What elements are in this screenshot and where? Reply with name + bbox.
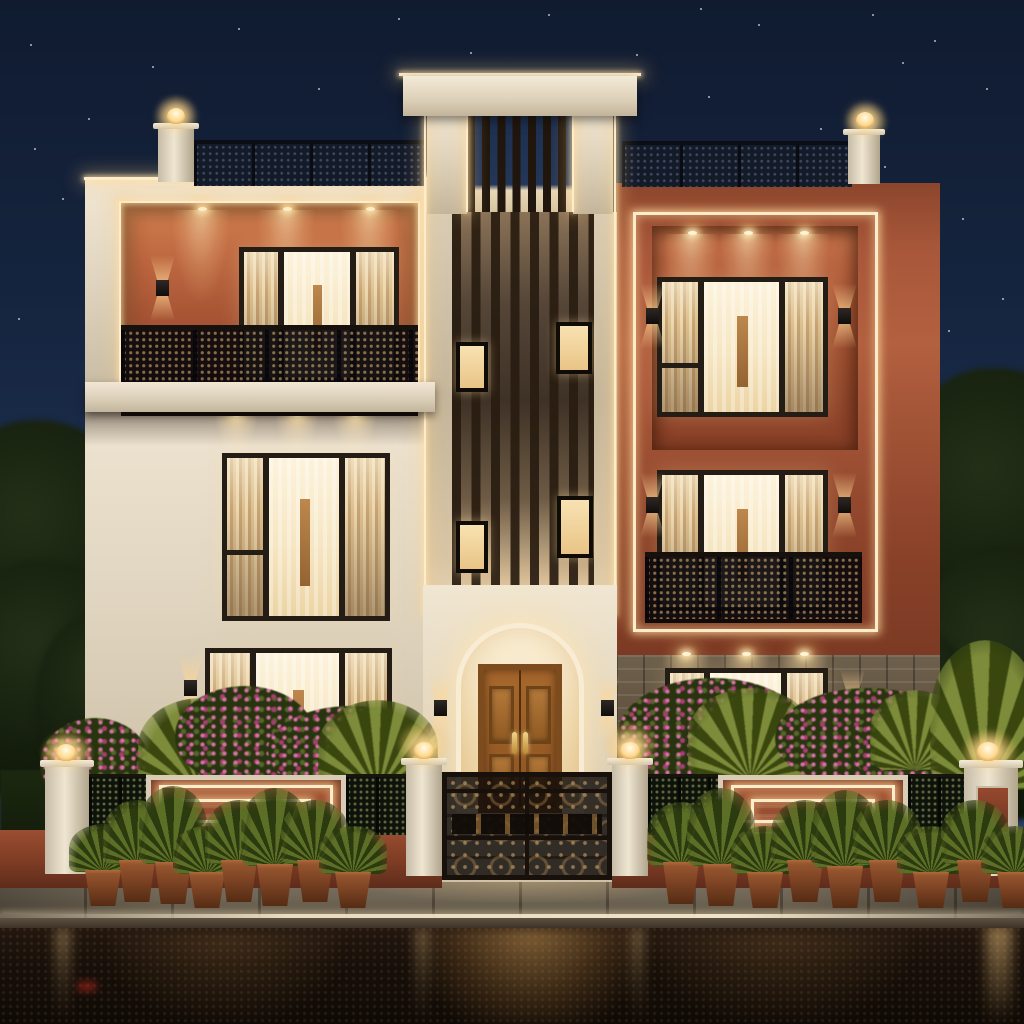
tower-pergola xyxy=(467,114,573,212)
wall-sconce xyxy=(601,700,614,716)
terracotta-pot xyxy=(827,866,863,908)
pillar-lamp xyxy=(167,108,185,124)
pillar-cap xyxy=(401,758,447,765)
led-strip xyxy=(119,201,420,203)
planter xyxy=(328,808,378,908)
window-transom xyxy=(662,363,698,368)
entry-gate xyxy=(442,772,612,880)
door-panel xyxy=(526,686,551,744)
downlight xyxy=(682,652,691,656)
tower-slat-window xyxy=(556,322,592,374)
tower-column xyxy=(427,114,467,214)
pillar-lamp xyxy=(414,742,434,759)
curtain xyxy=(227,458,263,616)
tower-cornice xyxy=(403,76,637,116)
reflection xyxy=(416,928,428,1022)
reflection xyxy=(650,932,910,1020)
pillar-lamp xyxy=(56,744,76,761)
door-handle xyxy=(512,732,517,754)
wall-sconce xyxy=(184,680,197,696)
lit-interior xyxy=(704,282,779,412)
wall-sconce xyxy=(646,497,659,513)
terracotta-pot xyxy=(997,872,1024,908)
downlight xyxy=(800,652,809,656)
gate-pillar xyxy=(612,762,648,876)
gate-band xyxy=(452,814,602,834)
led-strip xyxy=(614,116,616,616)
plant-foliage xyxy=(319,826,387,874)
pillar-cap xyxy=(959,760,1023,768)
tower-column xyxy=(573,114,613,214)
wall-sconce xyxy=(156,280,169,296)
reflection xyxy=(428,928,633,1024)
pillar-cap xyxy=(607,758,653,765)
curtain xyxy=(662,282,698,412)
reflection xyxy=(986,926,1012,1024)
pillar-lamp xyxy=(977,742,999,761)
scene xyxy=(0,0,1024,1024)
wall-sconce xyxy=(838,308,851,324)
led-strip xyxy=(466,116,468,212)
lit-interior xyxy=(269,458,339,616)
led-strip xyxy=(424,116,426,616)
reflection xyxy=(632,928,644,1022)
curb xyxy=(0,918,1024,928)
roof-railing xyxy=(194,140,424,186)
wall-sconce xyxy=(434,700,447,716)
tower-slat-window xyxy=(557,496,593,558)
tower-slat-window xyxy=(456,521,488,573)
terracotta-pot xyxy=(913,872,949,908)
gate-bar xyxy=(447,836,607,840)
juliet-balcony-railing xyxy=(645,552,862,623)
roof-pillar xyxy=(158,126,194,182)
right-window-upper xyxy=(657,277,828,417)
pillar-lamp xyxy=(856,112,874,128)
pillar-lamp xyxy=(620,742,640,759)
terracotta-pot xyxy=(663,862,699,904)
door-panel xyxy=(489,686,514,744)
wall-sconce xyxy=(838,497,851,513)
light-pool xyxy=(172,210,230,302)
gate-bar xyxy=(447,789,607,793)
wall-sconce xyxy=(646,308,659,324)
terracotta-pot xyxy=(747,872,783,908)
gate-pillar xyxy=(406,762,442,876)
terracotta-pot xyxy=(335,872,371,908)
planter xyxy=(990,808,1024,908)
tower-slat-window xyxy=(456,342,488,392)
led-strip xyxy=(572,116,574,212)
window-transom xyxy=(227,550,263,555)
tower-side-wall xyxy=(425,212,452,622)
roof-railing xyxy=(622,141,852,187)
pillar-cap xyxy=(40,760,94,767)
reflection xyxy=(56,928,70,1020)
inner-hallway xyxy=(300,499,310,586)
left-window-upper xyxy=(222,453,390,621)
reflection xyxy=(110,932,340,1020)
led-strip xyxy=(418,202,420,384)
balcony-slab xyxy=(85,382,435,412)
tail-light-reflection xyxy=(78,982,96,991)
inner-hallway xyxy=(737,316,748,388)
door-handle xyxy=(523,732,528,754)
curtain xyxy=(785,282,823,412)
curtain xyxy=(345,458,385,616)
terracotta-pot xyxy=(257,864,293,906)
downlight xyxy=(742,652,751,656)
stars xyxy=(0,0,2,2)
pillar-cap xyxy=(843,129,885,135)
roof-pillar xyxy=(848,132,880,184)
